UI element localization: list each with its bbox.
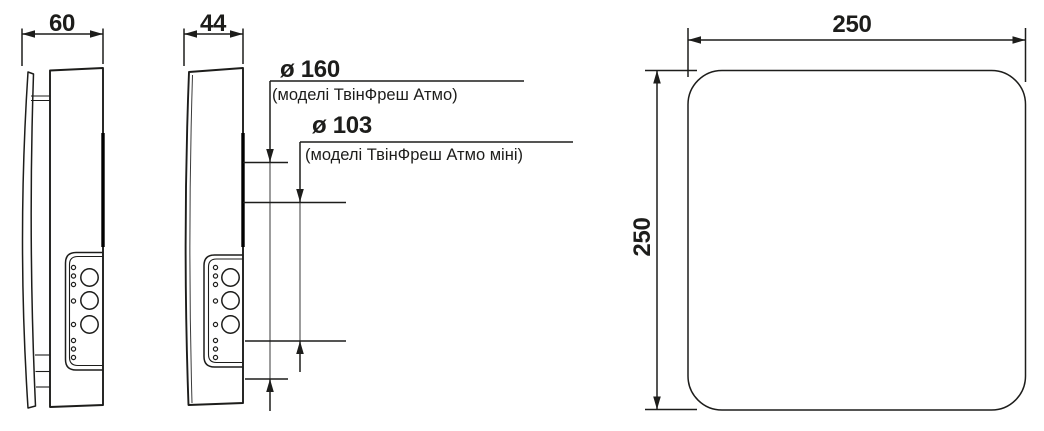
width-250-value: 250 xyxy=(832,11,871,38)
arrowhead-right xyxy=(1013,36,1026,44)
arrowhead-down xyxy=(653,397,661,410)
callout-diameter-103: ø 103 (моделі ТвінФреш Атмо міні) xyxy=(243,112,573,372)
dimension-width-250: 250 xyxy=(688,11,1026,82)
arrowhead-left xyxy=(184,30,197,38)
arrowhead-right xyxy=(90,30,103,38)
arrowhead-down xyxy=(266,149,274,162)
drawing-canvas: 60 44 xyxy=(0,0,1044,431)
arrowhead-down xyxy=(296,189,304,202)
front-cover-profile xyxy=(23,72,36,408)
dimension-height-250: 250 xyxy=(629,71,697,410)
depth-44-value: 44 xyxy=(200,10,227,37)
height-250-value: 250 xyxy=(629,217,656,256)
front-panel-outline xyxy=(688,71,1026,411)
control-buttons xyxy=(222,269,239,333)
diameter-160-note: (моделі ТвінФреш Атмо) xyxy=(272,86,458,104)
arrowhead-up xyxy=(296,341,304,354)
arrowhead-up xyxy=(266,379,274,392)
depth-60-value: 60 xyxy=(49,10,75,37)
dimension-drawing: 60 44 xyxy=(0,0,1044,431)
side-view-44mm xyxy=(186,68,243,405)
diameter-103-note: (моделі ТвінФреш Атмо міні) xyxy=(305,146,523,164)
arrowhead-right xyxy=(230,30,243,38)
side-view-60mm xyxy=(23,68,104,408)
front-view xyxy=(688,71,1026,411)
diameter-160-label: ø 160 xyxy=(280,56,340,83)
callout-diameter-160: ø 160 (моделі ТвінФреш Атмо) xyxy=(243,56,524,411)
unit-body xyxy=(50,68,103,407)
diameter-103-label: ø 103 xyxy=(312,112,372,139)
dimension-depth-60: 60 xyxy=(22,10,103,66)
unit-body xyxy=(186,68,243,405)
arrowhead-left xyxy=(22,30,35,38)
dimension-depth-44: 44 xyxy=(184,10,243,66)
arrowhead-up xyxy=(653,71,661,84)
control-buttons xyxy=(81,269,98,333)
arrowhead-left xyxy=(688,36,701,44)
